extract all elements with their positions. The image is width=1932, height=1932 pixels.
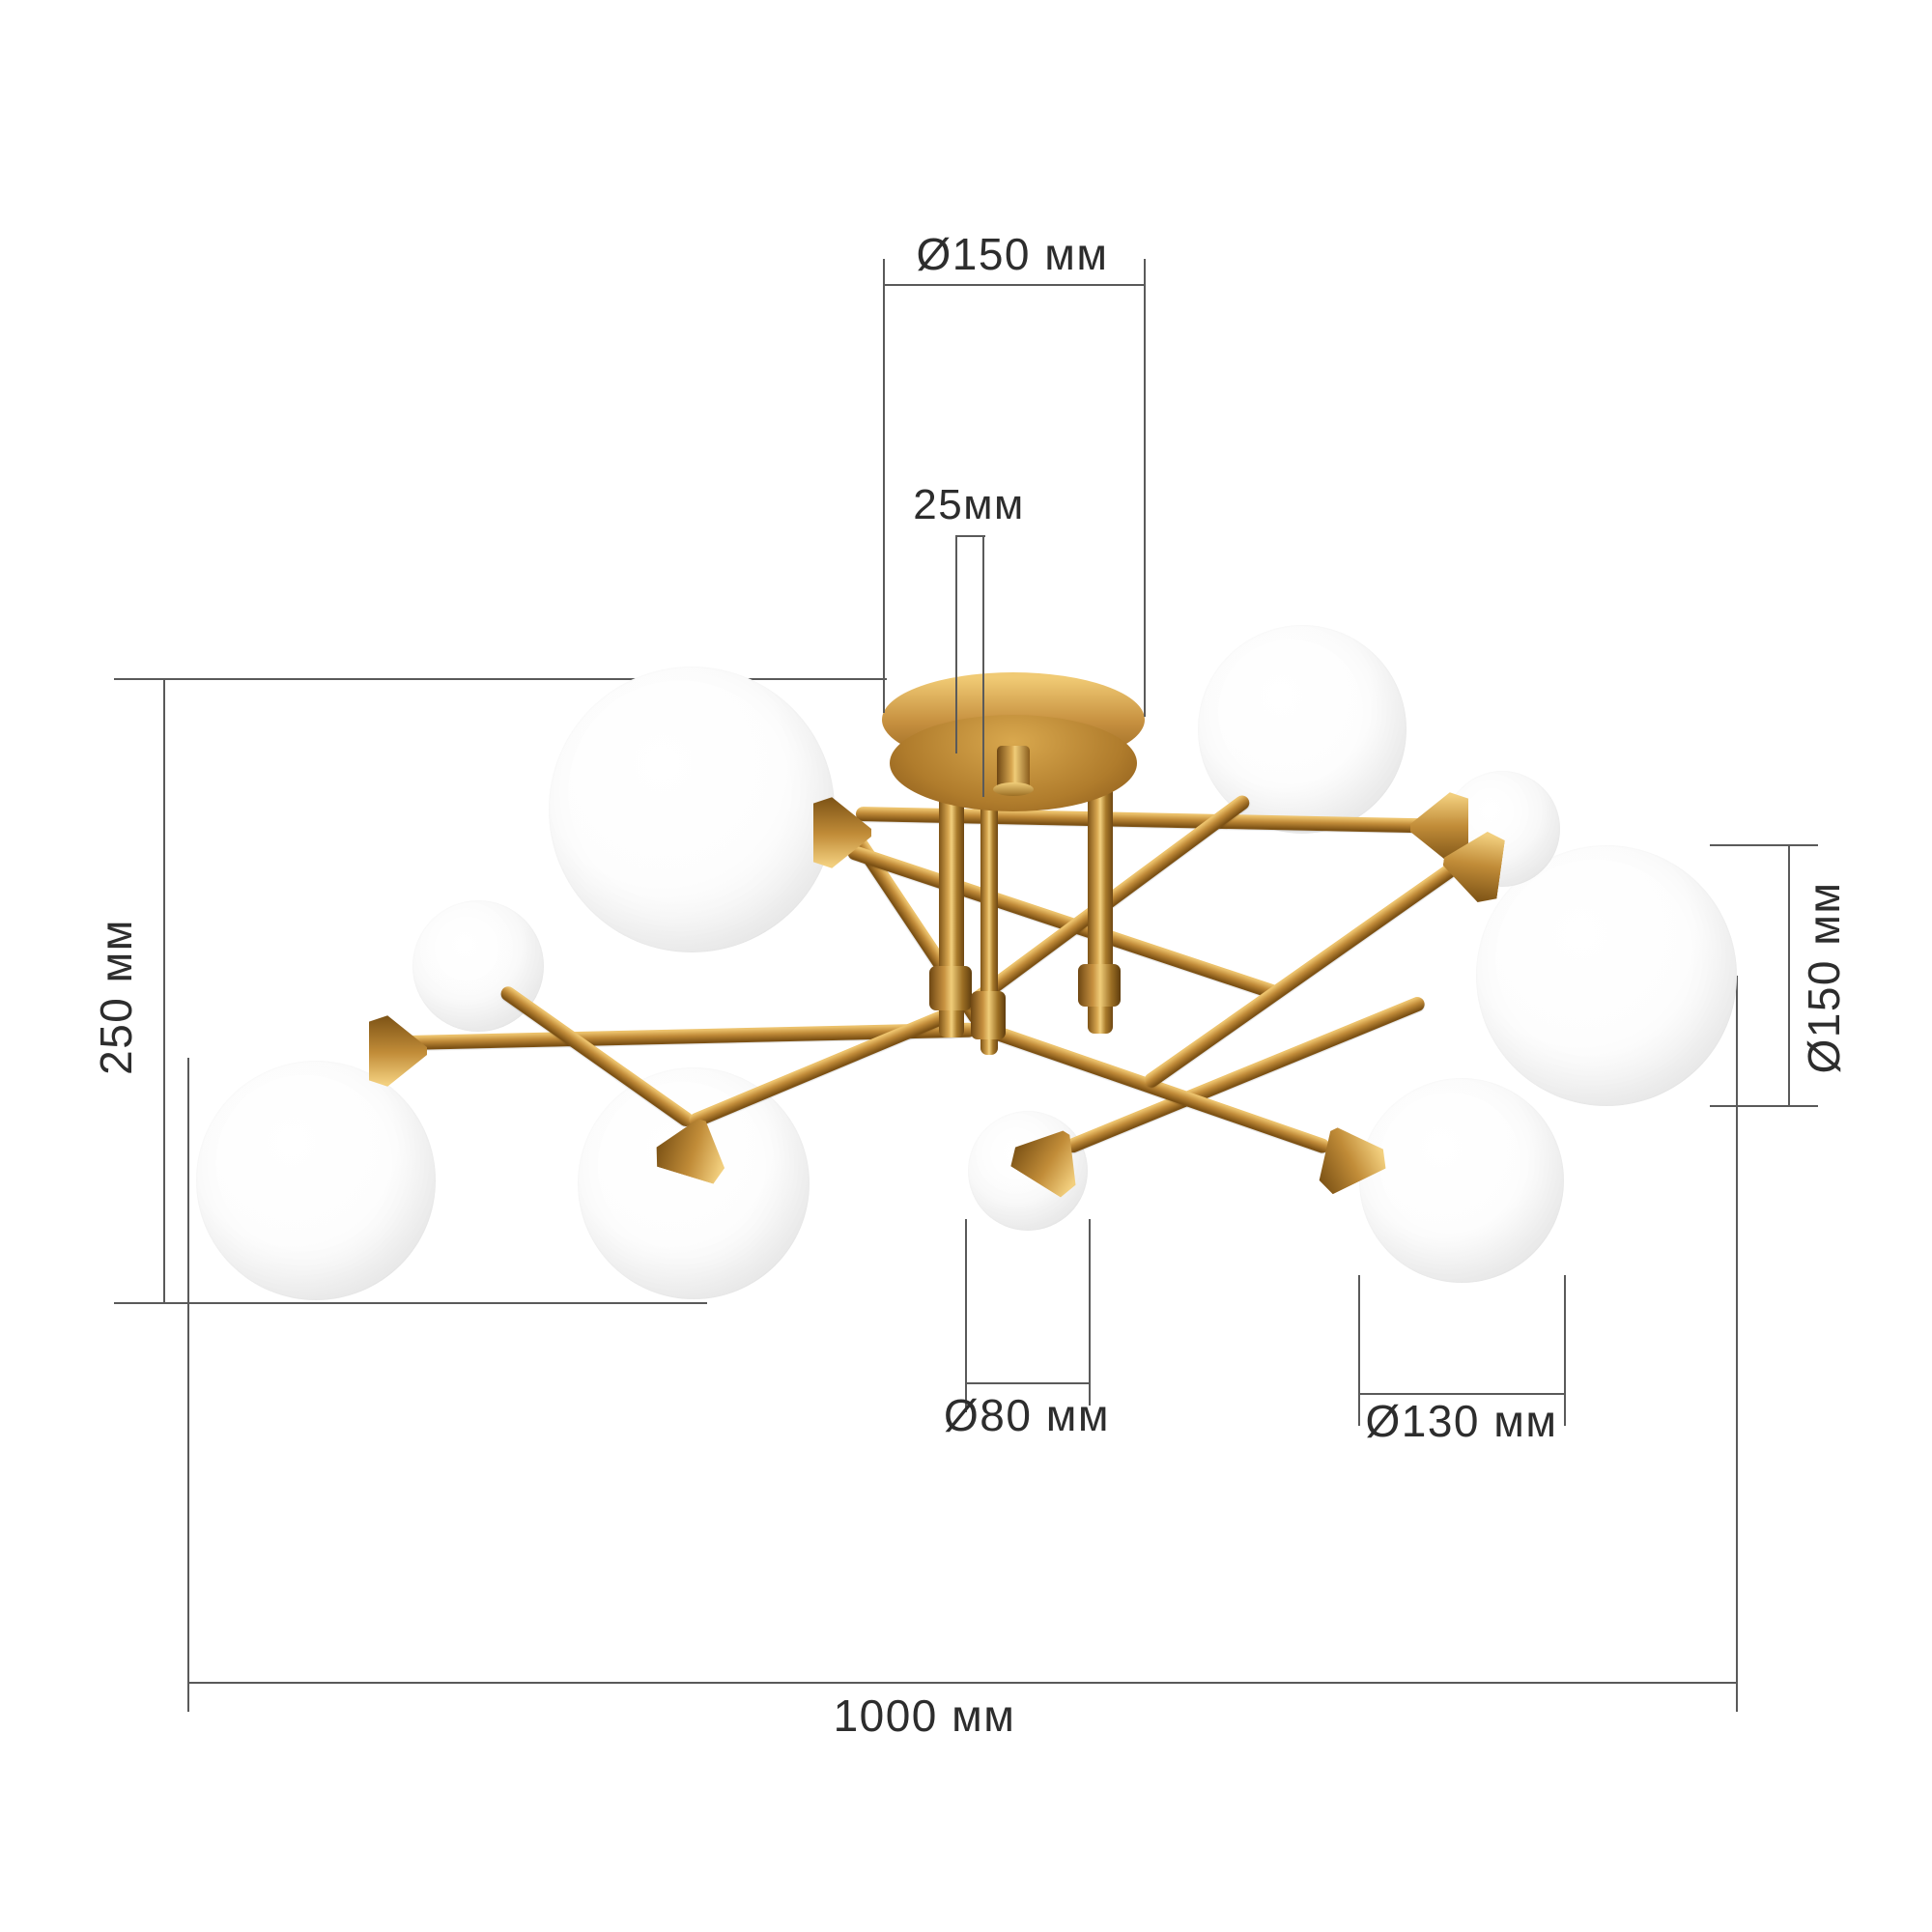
dim-extension: [1089, 1219, 1091, 1406]
dim-extension: [1736, 976, 1738, 1712]
dim-line: [1788, 844, 1790, 1107]
dim-tick: [114, 1302, 707, 1304]
dim-line: [188, 1682, 1738, 1684]
stem-diameter-label: 25мм: [872, 479, 1065, 531]
glass-globe-left: [196, 1061, 436, 1300]
dim-extension: [1144, 259, 1146, 717]
dim-stem-line: [956, 535, 985, 537]
dim-extension: [965, 1219, 967, 1412]
arm-bottom-left-v: [687, 1002, 965, 1129]
total-width-label: 1000 мм: [828, 1690, 1021, 1742]
dim-tick: [114, 678, 887, 680]
hub-collar-left: [929, 966, 972, 1010]
dim-extension: [955, 535, 957, 753]
dim-line: [966, 1382, 1090, 1384]
right-globe-diameter-label: Ø150 мм: [1798, 833, 1850, 1122]
hub-collar-center: [971, 991, 1006, 1039]
dimension-diagram: Ø150 мм 25мм 250 мм Ø150 мм Ø80 мм Ø130 …: [0, 0, 1932, 1932]
hub-collar-right: [1078, 964, 1121, 1007]
canopy-diameter-label: Ø150 мм: [867, 228, 1157, 280]
canopy-stub-cap: [993, 782, 1034, 796]
glass-globe-bottom-left: [578, 1067, 810, 1299]
dim-line: [163, 678, 165, 1304]
socket-left: [369, 1012, 427, 1090]
glass-globe-bottom-right-130mm: [1359, 1078, 1564, 1283]
small-globe-diameter-label: Ø80 мм: [930, 1389, 1123, 1441]
arm-small-globe-stem: [498, 983, 696, 1129]
dim-extension: [982, 535, 984, 797]
glass-globe-upper-left-large: [549, 667, 835, 952]
dim-canopy-line: [884, 284, 1145, 286]
dim-extension: [187, 1058, 189, 1712]
height-label: 250 мм: [90, 852, 142, 1142]
bottom-globe-diameter-label: Ø130 мм: [1355, 1395, 1568, 1447]
